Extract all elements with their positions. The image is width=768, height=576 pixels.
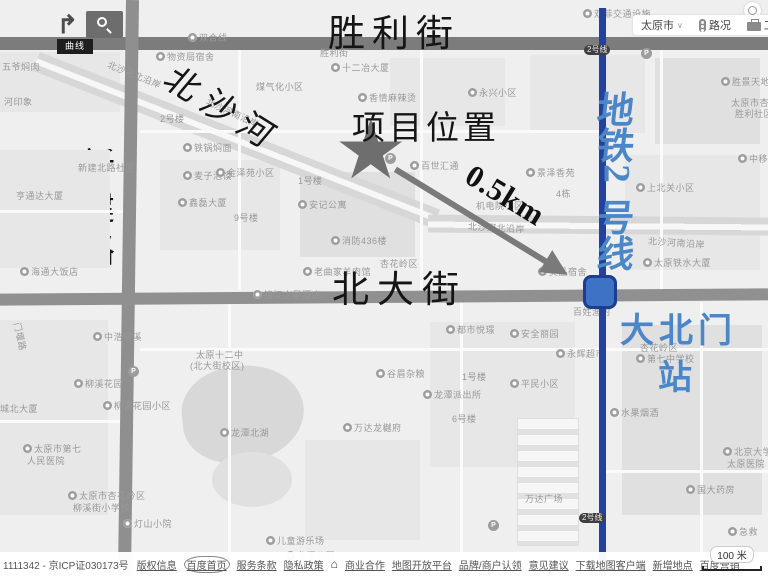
map-label: 安记公寓 [298, 198, 347, 211]
map-label: 4栋 [556, 187, 571, 200]
footer-link[interactable]: 隐私政策 [284, 557, 324, 572]
footer-links: 版权信息百度首页服务条款隐私政策⌂商业合作地图开放平台品牌/商户认领意见建议下载… [137, 556, 740, 573]
poi-marker-icon [686, 485, 695, 494]
map-label: 十二冶大厦 [331, 61, 390, 74]
poi-marker-icon [636, 354, 645, 363]
map-label: 中浩柳溪 [93, 330, 142, 343]
map-label: 龙潭派出所 [423, 388, 482, 401]
map-label: 金泽苑小区 [216, 166, 275, 179]
map-label: 亨通达大厦 [16, 189, 64, 202]
map-toolbar: 太原市 ∨ 路况 工具箱 [633, 15, 768, 35]
map-scale: 100 米 [702, 546, 762, 571]
map-label: 太原铁水大厦 [643, 256, 711, 269]
search-button[interactable] [86, 11, 123, 38]
map-label: 永辉超市 [556, 347, 605, 360]
poi-marker-icon [721, 77, 730, 86]
poi-marker-icon [556, 349, 565, 358]
poi-marker-icon [220, 428, 229, 437]
footer-link[interactable]: 商业合作 [345, 557, 385, 572]
map-label: 锦江之星酒店 [253, 288, 321, 301]
map-label: 2号楼 [160, 112, 185, 125]
poi-marker-icon [156, 52, 165, 61]
map-label: 城北大厦 [0, 402, 38, 415]
map-label: 河印象 [4, 95, 33, 108]
map-label: 柳溪街小学校 [73, 501, 130, 514]
map-label: 人民医院 [27, 454, 65, 467]
poi-marker-icon [526, 168, 535, 177]
poi-marker-icon [583, 9, 592, 18]
poi-marker-icon [468, 88, 477, 97]
poi-marker-icon [738, 154, 747, 163]
footer-link[interactable]: 下载地图客户端 [576, 557, 646, 572]
poi-marker-icon [253, 290, 262, 299]
map-label: 胜利社区 [735, 107, 768, 120]
map-label: 鑫磊大厦 [178, 196, 227, 209]
map-label: 9号楼 [234, 211, 259, 224]
parking-marker-icon: P [488, 520, 499, 531]
chevron-down-icon: ∨ [677, 21, 683, 30]
metro-line-badge: 2号线 [584, 45, 610, 55]
poi-marker-icon [410, 161, 419, 170]
metro-station-marker [583, 275, 617, 309]
poi-marker-icon [728, 527, 737, 536]
toolbox-button[interactable]: 工具箱 [739, 17, 768, 33]
map-label: 北沙河南沿岸 [648, 234, 706, 251]
toolbox-icon [747, 22, 761, 31]
annotation-dabeimen-station: 大北门 [620, 303, 737, 352]
footer-link[interactable]: 版权信息 [137, 557, 177, 572]
poi-marker-icon [610, 408, 619, 417]
annotation-metro-char: 线 [593, 224, 639, 278]
map-label: 都市悦璟 [446, 323, 495, 336]
map-label: 新建北路社区 [78, 161, 135, 174]
traffic-button-label: 路况 [709, 17, 731, 33]
poi-marker-icon [510, 329, 519, 338]
metro-line-badge: 2号线 [579, 513, 605, 523]
poi-marker-icon [643, 258, 652, 267]
poi-marker-icon [103, 401, 112, 410]
traffic-button[interactable]: 路况 [691, 17, 739, 33]
footer-bar: 1111342 - 京ICP证030173号 版权信息百度首页服务条款隐私政策⌂… [0, 552, 768, 576]
map-label: 柳溪花园 [74, 377, 123, 390]
map-label: 灯山小院 [123, 517, 172, 530]
poi-marker-icon [723, 447, 732, 456]
poi-marker-icon [183, 143, 192, 152]
map-label: 儿童游乐场 [266, 534, 325, 547]
scale-bar [702, 566, 762, 571]
poi-marker-icon [331, 236, 340, 245]
map-label: 胜景天地 [721, 75, 768, 88]
search-icon [97, 17, 107, 27]
map-label: 1号楼 [298, 174, 323, 187]
poi-marker-icon [20, 267, 29, 276]
footer-link[interactable]: 百度首页 [184, 556, 230, 573]
poi-marker-icon [123, 519, 132, 528]
route-arrow-icon[interactable]: ↱ [57, 10, 78, 40]
poi-marker-icon [68, 491, 77, 500]
map-label: 五爷焖肉 [2, 60, 40, 73]
poi-marker-icon [343, 423, 352, 432]
map-label: 双合线 [188, 31, 228, 44]
map-label: 北沙河北沿岸 [106, 58, 164, 91]
map-label: 水果烟酒 [610, 406, 659, 419]
scale-label: 100 米 [710, 546, 753, 563]
poi-marker-icon [331, 63, 340, 72]
home-icon: ⌂ [331, 557, 338, 571]
map-label: 上北关小区 [636, 181, 695, 194]
map-label: 门堰路 [11, 321, 30, 352]
parking-marker-icon: P [128, 366, 139, 377]
map-label: 6号楼 [452, 412, 477, 425]
annotation-beida-street: 北大街 [332, 259, 467, 313]
map-label: 柳溪花园小区 [103, 399, 171, 412]
map-label: 国大药房 [686, 483, 735, 496]
traffic-light-icon [699, 19, 706, 32]
map-label: 消防436楼 [331, 234, 387, 247]
map-label: 龙潭北湖 [220, 426, 269, 439]
poi-marker-icon [510, 379, 519, 388]
map-label: 百世汇通 [410, 159, 459, 172]
map-label: 万达广场 [525, 492, 563, 505]
map-label: 煤气化小区 [256, 80, 304, 93]
poi-marker-icon [423, 390, 432, 399]
poi-marker-icon [74, 379, 83, 388]
map-label: 万达龙樾府 [343, 421, 402, 434]
map-label: 海通大饭店 [20, 265, 79, 278]
map-label: 急救 [728, 525, 758, 538]
map-label: 景泽香苑 [526, 166, 575, 179]
footer-link[interactable]: 地图开放平台 [392, 557, 452, 572]
poi-marker-icon [178, 198, 187, 207]
annotation-dabeimen-station: 站 [658, 350, 692, 399]
map-label: 谷眉杂粮 [376, 367, 425, 380]
map-label: 铁锅焖面 [183, 141, 232, 154]
footer-link[interactable]: 意见建议 [529, 557, 569, 572]
poi-marker-icon [303, 267, 312, 276]
parking-marker-icon: P [641, 48, 652, 59]
map-label: 中移在线 [738, 152, 768, 165]
city-selector-label: 太原市 [641, 17, 674, 33]
poi-marker-icon [216, 168, 225, 177]
footer-link[interactable]: 品牌/商户认领 [459, 557, 522, 572]
toolbox-button-label: 工具箱 [764, 17, 768, 33]
annotation-project-location: 项目位置 [352, 101, 500, 149]
footer-link[interactable]: 服务条款 [237, 557, 277, 572]
annotation-shengli-street: 胜利街 [328, 3, 460, 57]
tool-tooltip: 曲线 [57, 39, 93, 54]
map-label: 1号楼 [462, 370, 487, 383]
city-selector[interactable]: 太原市 ∨ [633, 17, 691, 33]
poi-marker-icon [188, 33, 197, 42]
map-label: (北大街校区) [190, 359, 245, 372]
poi-marker-icon [298, 200, 307, 209]
poi-marker-icon [266, 536, 275, 545]
baidu-map-screenshot[interactable]: 五爷焖肉河印象物资局宿舍双合线双菲交通设施十二冶大厦胜利街胜景天地太原市杏花胜利… [0, 0, 768, 576]
poi-marker-icon [23, 444, 32, 453]
poi-marker-icon [446, 325, 455, 334]
map-label: 平民小区 [510, 377, 559, 390]
poi-marker-icon [93, 332, 102, 341]
footer-link[interactable]: 新增地点 [653, 557, 693, 572]
poi-marker-icon [376, 369, 385, 378]
poi-marker-icon [183, 171, 192, 180]
map-label: 永兴小区 [468, 86, 517, 99]
map-label: 太原医院 [727, 457, 765, 470]
map-label: 安全丽园 [510, 327, 559, 340]
copyright-text: 1111342 - 京ICP证030173号 [3, 557, 129, 572]
